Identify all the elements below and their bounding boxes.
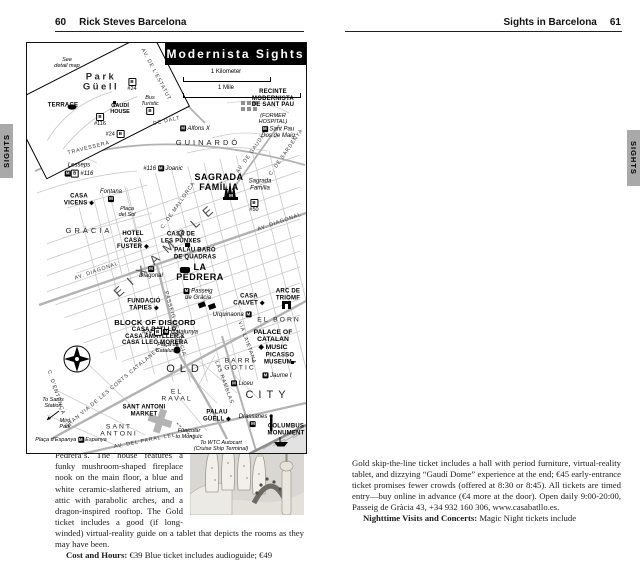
palau-quadras: PALAU BARÓDE QUADRAS <box>174 247 216 260</box>
left-header-rule <box>55 31 304 32</box>
bus-24-park: B#24 <box>127 78 136 92</box>
district-old: OLD <box>166 363 204 375</box>
sagrada-familia-label: SAGRADAFAMÍLIA <box>194 173 243 193</box>
metro-joanic: #116 M Joanic <box>143 165 183 172</box>
metro-icon: M <box>163 329 169 335</box>
bus-icon: B <box>154 328 162 336</box>
metro-icon: M <box>228 193 234 199</box>
left-sights-tab: SIGHTS <box>0 124 13 178</box>
scale-km-label: 1 Kilometer <box>211 69 241 75</box>
district-city: CITY <box>245 389 290 401</box>
scale-mile-label: 1 Mile <box>218 85 234 91</box>
placa-del-sol: Plaçadel Sol <box>119 206 136 218</box>
left-page-number: 60 <box>55 17 66 28</box>
right-running-title: Sights in Barcelona <box>504 17 597 28</box>
map-title: Modernista Sights <box>165 43 306 65</box>
paragraph: Gold skip-the-line ticket includes a hal… <box>352 458 621 513</box>
metro-jaume: M Jaume I <box>262 372 291 379</box>
metro-icon: M <box>108 196 114 202</box>
metro-lesseps: LessepsMB #116 <box>65 163 94 178</box>
book-spread: 60Rick Steves Barcelona SIGHTS <box>0 0 640 568</box>
paragraph: Nighttime Visits and Concerts: Magic Nig… <box>352 513 621 524</box>
bus-icon: B <box>146 107 154 115</box>
columbus-monument: COLUMBUSMONUMENT <box>268 423 305 436</box>
bus-icon: B <box>128 78 136 86</box>
metro-urquinaona: Urquinaona M <box>213 311 252 318</box>
bus-turistic: BusTurísticB <box>141 95 159 115</box>
district-el-born: EL BORN <box>257 316 301 323</box>
metro-liceu: M Liceu <box>231 380 253 387</box>
scale-mile-bar <box>183 93 301 98</box>
fundacio-tapies: FUNDACIÓTÀPIES ◆ <box>127 298 160 311</box>
metro-icon: M <box>180 125 186 131</box>
metro-drassanes: DrassanesM <box>239 414 268 428</box>
bus-icon: B <box>116 130 124 138</box>
right-page-body: Gold skip-the-line ticket includes a hal… <box>352 458 621 525</box>
funicular-note: Funicularto Montjuïc <box>176 428 203 440</box>
scale-km-bar <box>183 77 271 82</box>
block-of-discord: BLOCK OF DISCORD <box>114 319 196 327</box>
metro-alfons-x: M Alfons X <box>180 125 210 132</box>
metro-icon: M <box>158 165 164 171</box>
metro-catalunya: #24 B M Catalunya <box>142 328 198 336</box>
bus-icon: B <box>71 169 79 177</box>
metro-pg-gracia: M Passeigde Gràcia <box>183 288 212 302</box>
district-gracia: GRÀCIA <box>66 227 113 235</box>
casa-vicens-label: CASAVICENS ◆ <box>64 193 94 206</box>
picasso-museum: PICASSOMUSEUM ▪ <box>264 352 296 365</box>
left-page-header: 60Rick Steves Barcelona <box>55 17 186 28</box>
bus-icon: B <box>250 199 258 207</box>
terrace-label: TERRACE <box>48 103 78 110</box>
paragraph: Cost and Hours: €39 Blue ticket includes… <box>55 550 304 561</box>
right-sights-tab: SIGHTS <box>627 130 640 186</box>
metro-sagrada-name: SagradaFamília <box>249 178 272 191</box>
metro-icon: M <box>250 421 256 427</box>
palace-catalan-music: PALACE OFCATALAN◆ MUSIC <box>254 329 293 351</box>
arc-de-triomf: ARC DETRIOMF <box>276 288 300 301</box>
metro-icon: M <box>231 380 237 386</box>
left-running-title: Rick Steves Barcelona <box>79 17 186 28</box>
gaudi-house-label: GAUDÍHOUSE <box>110 103 130 115</box>
right-page-header: Sights in Barcelona61 <box>504 17 621 28</box>
metro-icon: M <box>78 437 84 443</box>
bus-24: #24 B <box>106 130 125 138</box>
bus-50: B#50 <box>249 199 258 213</box>
hotel-casa-fuster: HOTELCASAFUSTER ◆ <box>117 231 149 251</box>
metro-sagrada: M <box>228 193 234 200</box>
right-page-number: 61 <box>610 17 621 28</box>
sant-antoni-market: SANT ANTONIMARKET <box>123 404 166 417</box>
map-note-detail: Seedetail map <box>54 57 79 69</box>
bus-116-park: B#116 <box>94 113 106 127</box>
modernista-sights-map: Modernista Sights 1 Kilometer 1 Mile See… <box>26 42 307 454</box>
la-pedrera-label: LAPEDRERA <box>176 263 224 283</box>
metro-icon: M <box>245 311 251 317</box>
park-guell-label: ParkGüell <box>83 73 119 94</box>
metro-icon: M <box>262 372 268 378</box>
metro-icon: M <box>183 288 189 294</box>
recinte-sant-pau-sub: (FORMERHOSPITAL) <box>259 113 288 125</box>
district-el-raval: ELRAVAL <box>161 389 192 404</box>
district-barri-gotic: BARRIGÒTIC <box>224 358 256 373</box>
district-guinardo: GUINARDÓ <box>176 139 240 147</box>
miro-park: MiróPark <box>59 418 70 430</box>
metro-icon: M <box>262 126 268 132</box>
metro-fontana: FontanaM <box>100 189 122 203</box>
casa-calvet: CASACALVET ◆ <box>233 293 264 306</box>
wtc-note: To WTC Autocart(Cruise Ship Terminal) <box>194 440 249 452</box>
placa-espanya: Plaça d’Espanya M Espanya <box>35 437 106 444</box>
palau-guell-label: PALAUGÜELL ◆ <box>203 409 231 422</box>
bus-icon: B <box>96 113 104 121</box>
right-header-rule <box>345 31 622 32</box>
